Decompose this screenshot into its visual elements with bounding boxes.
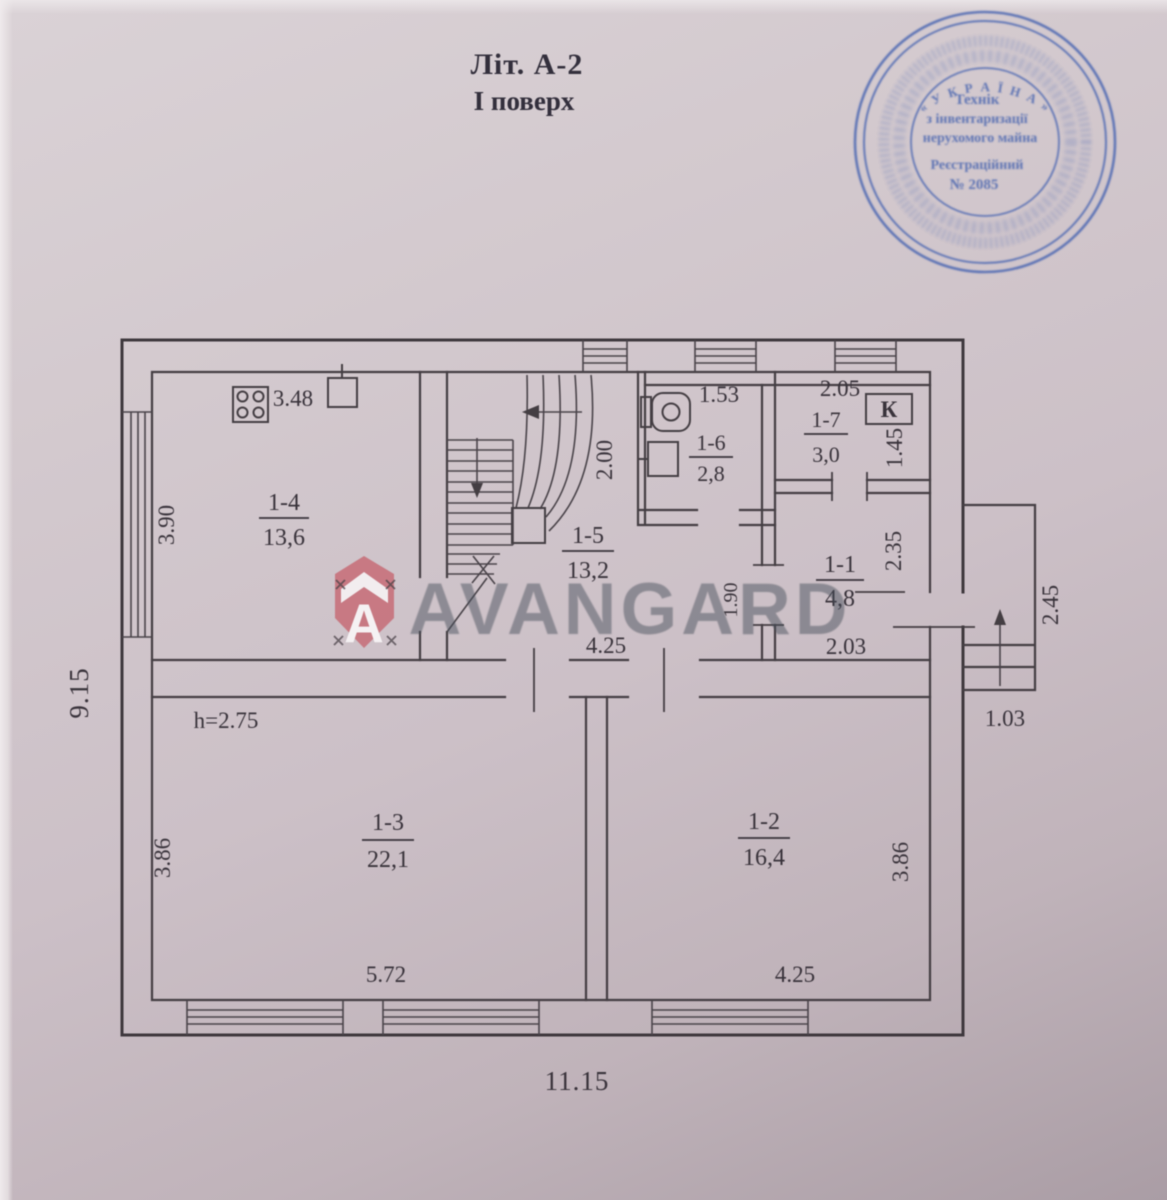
boiler-box: К [866,394,912,424]
dim-room12-width: 4.25 [775,962,815,987]
window-bottom-3 [652,1000,808,1035]
room-area: 13,6 [263,525,305,551]
dim-room17-height: 1.45 [882,428,907,468]
dim-room12-height: 3.86 [888,842,913,882]
stair-down-arrow [471,483,483,498]
stair-post [512,508,545,543]
room-number: 1-5 [572,523,604,549]
porch [963,505,1035,690]
stamp-center-line2: з інвентаризації [926,112,1027,127]
window-left [122,412,152,637]
watermark: А AVANGARD [334,556,851,654]
window-bottom-2 [383,1000,539,1035]
dim-porch-width: 1.03 [985,706,1025,731]
room-label-1-4: 1-4 13,6 [259,490,309,551]
wall-room13-room12 [586,697,607,1000]
interior-walls [152,372,975,1000]
dim-overall-width: 11.15 [545,1066,610,1096]
room-number: 1-2 [748,809,780,835]
room-number: 1-4 [268,490,300,516]
floor-plan-svg: Літ. А-2 І поверх « У К Р А Ї Н А » Техн… [0,0,1167,1200]
windows [122,340,896,1035]
dimension-labels: 3.48 3.90 9.15 1.53 2.00 2.05 1.45 2.35 … [64,376,1063,1096]
porch-entry-arrow [994,609,1006,625]
room-area: 2,8 [697,461,725,486]
stair-treads [447,440,513,574]
wall-mid-horizontal [152,660,930,697]
room-area: 22,1 [367,847,409,873]
plan-title-building: Літ. А-2 [471,48,584,81]
window-top-2 [695,340,756,372]
dim-room13-width: 5.72 [366,962,406,987]
dim-ceiling-height: h=2.75 [194,708,259,733]
watermark-brand-text: AVANGARD [409,569,852,650]
room-label-1-2: 1-2 16,4 [738,809,790,871]
window-bottom-1 [187,1000,343,1035]
dim-room16-width: 1.53 [699,382,739,407]
dim-room14-width: 3.48 [273,386,313,411]
room-label-1-3: 1-3 22,1 [362,810,414,873]
flue-icon [328,364,357,407]
room-area: 16,4 [743,845,785,871]
round-stamp: « У К Р А Ї Н А » Технік з інвентаризаці… [855,12,1115,272]
room-number: 1-3 [372,810,404,836]
room-number: 1-7 [811,407,840,432]
room-area: 3,0 [812,442,840,467]
dim-overall-height: 9.15 [64,667,94,718]
dim-room16-height: 2.00 [592,440,617,480]
room-label-1-7: 1-7 3,0 [804,407,848,467]
dim-room11-height: 2.35 [881,531,906,571]
dim-room14-height: 3.90 [154,505,179,545]
room-number: 1-6 [696,430,725,455]
stove-icon [233,387,268,422]
wall-room17-room11 [775,480,930,493]
watermark-shield-letter: А [344,592,384,654]
dim-room13-height: 3.86 [150,838,175,878]
stair-up-arrow [522,405,539,419]
watermark-shield-logo: А [334,556,396,654]
room-label-1-6: 1-6 2,8 [689,430,733,486]
boiler-label: К [881,397,898,422]
stamp-center-line4: Реєстраційний [931,158,1024,173]
stamp-center-line5: № 2085 [950,177,999,193]
toilet-icon [641,393,690,431]
window-top-1 [583,340,627,372]
stamp-center-line1: Технік [955,92,1000,108]
dim-room17-width: 2.05 [820,376,860,401]
window-top-3 [835,340,896,372]
stamp-center-line3: нерухомого майна [923,131,1038,146]
dim-porch-height: 2.45 [1038,585,1063,625]
plan-title-floor: І поверх [474,86,575,116]
